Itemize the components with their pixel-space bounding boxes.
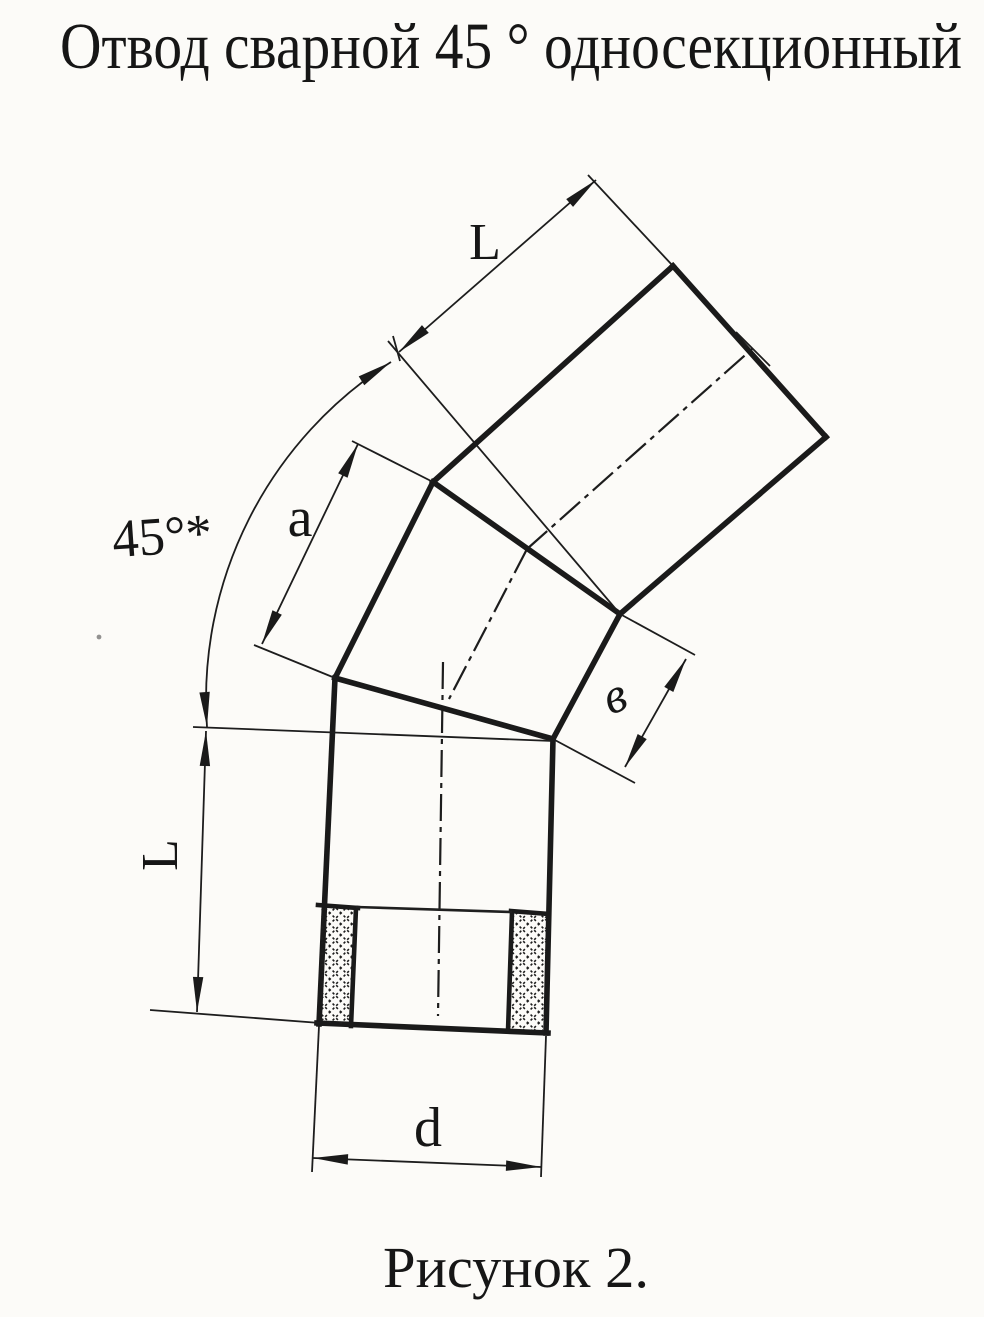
extension-line-L-left-bottom (150, 1010, 320, 1023)
extension-line-b-bottom (553, 739, 635, 783)
extension-line-a-bottom (254, 645, 335, 678)
mid-section-left-edge (335, 482, 433, 678)
extension-line-a-top (352, 441, 433, 482)
dimension-line-L-left (197, 731, 206, 1012)
dimension-line-d (313, 1158, 541, 1167)
bottom-pipe-right-wall (546, 739, 553, 1033)
label-45deg: 45°* (110, 502, 214, 569)
wall-section-cap-left (318, 905, 358, 908)
extension-line-b-top (620, 614, 695, 655)
weld-seams (335, 482, 620, 739)
wall-section-hatch-right (508, 912, 547, 1031)
elbow-drawing: Отвод сварной 45 ° односекционный (0, 0, 984, 1317)
top-pipe-lower-edge (620, 437, 826, 614)
extension-line-d-right (541, 1036, 546, 1177)
centerline-mid-section (449, 549, 527, 699)
label-a: a (288, 487, 313, 549)
extension-line-end-face (588, 175, 673, 266)
top-pipe-end-face (673, 266, 826, 437)
label-b: в (595, 665, 635, 725)
dimension-line-b (625, 659, 686, 767)
label-L-top: L (469, 214, 501, 271)
label-L-left: L (132, 839, 189, 871)
pipe-end-section (318, 905, 549, 1031)
bore-line (356, 907, 512, 912)
extension-line-L-left-top (193, 727, 553, 741)
lower-weld-seam (335, 678, 553, 739)
label-d: d (414, 1097, 442, 1159)
drawing-sheet: Отвод сварной 45 ° односекционный (0, 0, 984, 1317)
drawing-title: Отвод сварной 45 ° односекционный (60, 10, 962, 83)
upper-weld-seam (433, 482, 620, 614)
figure-caption: Рисунок 2. (383, 1235, 649, 1300)
centerline-top-pipe (527, 349, 752, 549)
extension-line-d-left (312, 1026, 319, 1172)
wall-section-cap-right (511, 911, 549, 914)
pipe-outline (317, 266, 826, 1033)
centerline-bottom-pipe (438, 662, 443, 1016)
top-pipe-upper-edge (433, 266, 673, 482)
centerline-end-tick (736, 332, 770, 366)
scan-speck (97, 635, 102, 640)
